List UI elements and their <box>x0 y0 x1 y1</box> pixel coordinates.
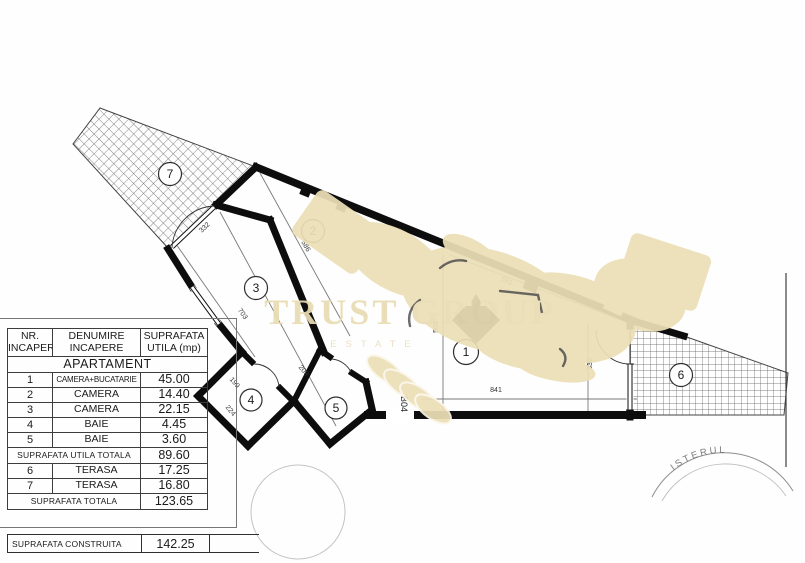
useful-total-value: 89.60 <box>141 448 208 464</box>
row-area: 17.25 <box>141 464 208 479</box>
room-number-5: 5 <box>333 401 340 415</box>
table-row: 6 TERASA 17.25 <box>8 464 208 479</box>
row-name: CAMERA <box>53 403 141 418</box>
room-circle-6: 6 <box>670 364 693 387</box>
row-nr: 2 <box>8 388 53 403</box>
table-row: 7 TERASA 16.80 <box>8 479 208 494</box>
row-name: TERASA <box>53 464 141 479</box>
total-label: SUPRAFATA TOTALA <box>8 494 141 510</box>
room-number-1: 1 <box>463 345 470 359</box>
row-area: 14.40 <box>141 388 208 403</box>
row-area: 16.80 <box>141 479 208 494</box>
dim-841: 841 <box>490 387 502 394</box>
dim-703: 703 <box>236 307 248 321</box>
table-row: 3 CAMERA 22.15 <box>8 403 208 418</box>
table-row: 4 BAIE 4.45 <box>8 418 208 433</box>
row-name: TERASA <box>53 479 141 494</box>
row-nr: 3 <box>8 403 53 418</box>
watermark-subtitle: ESTATE <box>330 339 420 350</box>
row-area: 45.00 <box>141 373 208 388</box>
row-name: CAMERA <box>53 388 141 403</box>
stamp-text: ISTERUL <box>669 445 727 473</box>
section-title: APARTAMENT <box>8 357 208 373</box>
row-nr: 7 <box>8 479 53 494</box>
header-nr-incapere: NR. INCAPERE <box>8 329 53 357</box>
row-nr: 5 <box>8 433 53 448</box>
table-row: 1 CAMERA+BUCATARIE 45.00 <box>8 373 208 388</box>
useful-total-label: SUPRAFATA UTILA TOTALA <box>8 448 141 464</box>
built-area-label: SUPRAFATA CONSTRUITA <box>12 539 122 549</box>
room-circle-7: 7 <box>159 163 182 186</box>
scanned-floor-plan-page: B04 332 586 703 199 224 209 581 508 841 … <box>0 0 805 563</box>
watermark-title: TRUST GROUP <box>264 292 555 332</box>
row-name: BAIE <box>53 418 141 433</box>
room-circle-5: 5 <box>325 397 347 419</box>
round-stamp: ISTERUL <box>652 445 793 501</box>
terrace-6-hatch <box>630 320 788 415</box>
row-nr: 4 <box>8 418 53 433</box>
total-value: 123.65 <box>141 494 208 510</box>
terrace-6 <box>630 320 788 415</box>
row-name: CAMERA+BUCATARIE <box>53 373 141 388</box>
useful-total-row: SUPRAFATA UTILA TOTALA 89.60 <box>8 448 208 464</box>
stamp-arc-text: ISTERUL <box>669 445 727 473</box>
room-number-3: 3 <box>253 281 260 295</box>
room-circle-4: 4 <box>240 389 262 411</box>
row-nr: 1 <box>8 373 53 388</box>
row-nr: 6 <box>8 464 53 479</box>
areas-table: NR. INCAPERE DENUMIRE INCAPERE SUPRAFATA… <box>7 328 208 510</box>
table-row: 5 BAIE 3.60 <box>8 433 208 448</box>
room-number-6: 6 <box>678 368 685 382</box>
header-suprafata-utila: SUPRAFATA UTILA (mp) <box>141 329 208 357</box>
room-number-4: 4 <box>248 393 255 407</box>
built-area-value: 142.25 <box>141 535 210 552</box>
row-name: BAIE <box>53 433 141 448</box>
header-denumire-incapere: DENUMIRE INCAPERE <box>53 329 141 357</box>
faint-stamp-circle <box>251 465 345 559</box>
room-number-7: 7 <box>167 167 174 181</box>
row-area: 22.15 <box>141 403 208 418</box>
table-row: 2 CAMERA 14.40 <box>8 388 208 403</box>
row-area: 3.60 <box>141 433 208 448</box>
total-row: SUPRAFATA TOTALA 123.65 <box>8 494 208 510</box>
row-area: 4.45 <box>141 418 208 433</box>
built-area-row: SUPRAFATA CONSTRUITA 142.25 <box>7 534 259 553</box>
